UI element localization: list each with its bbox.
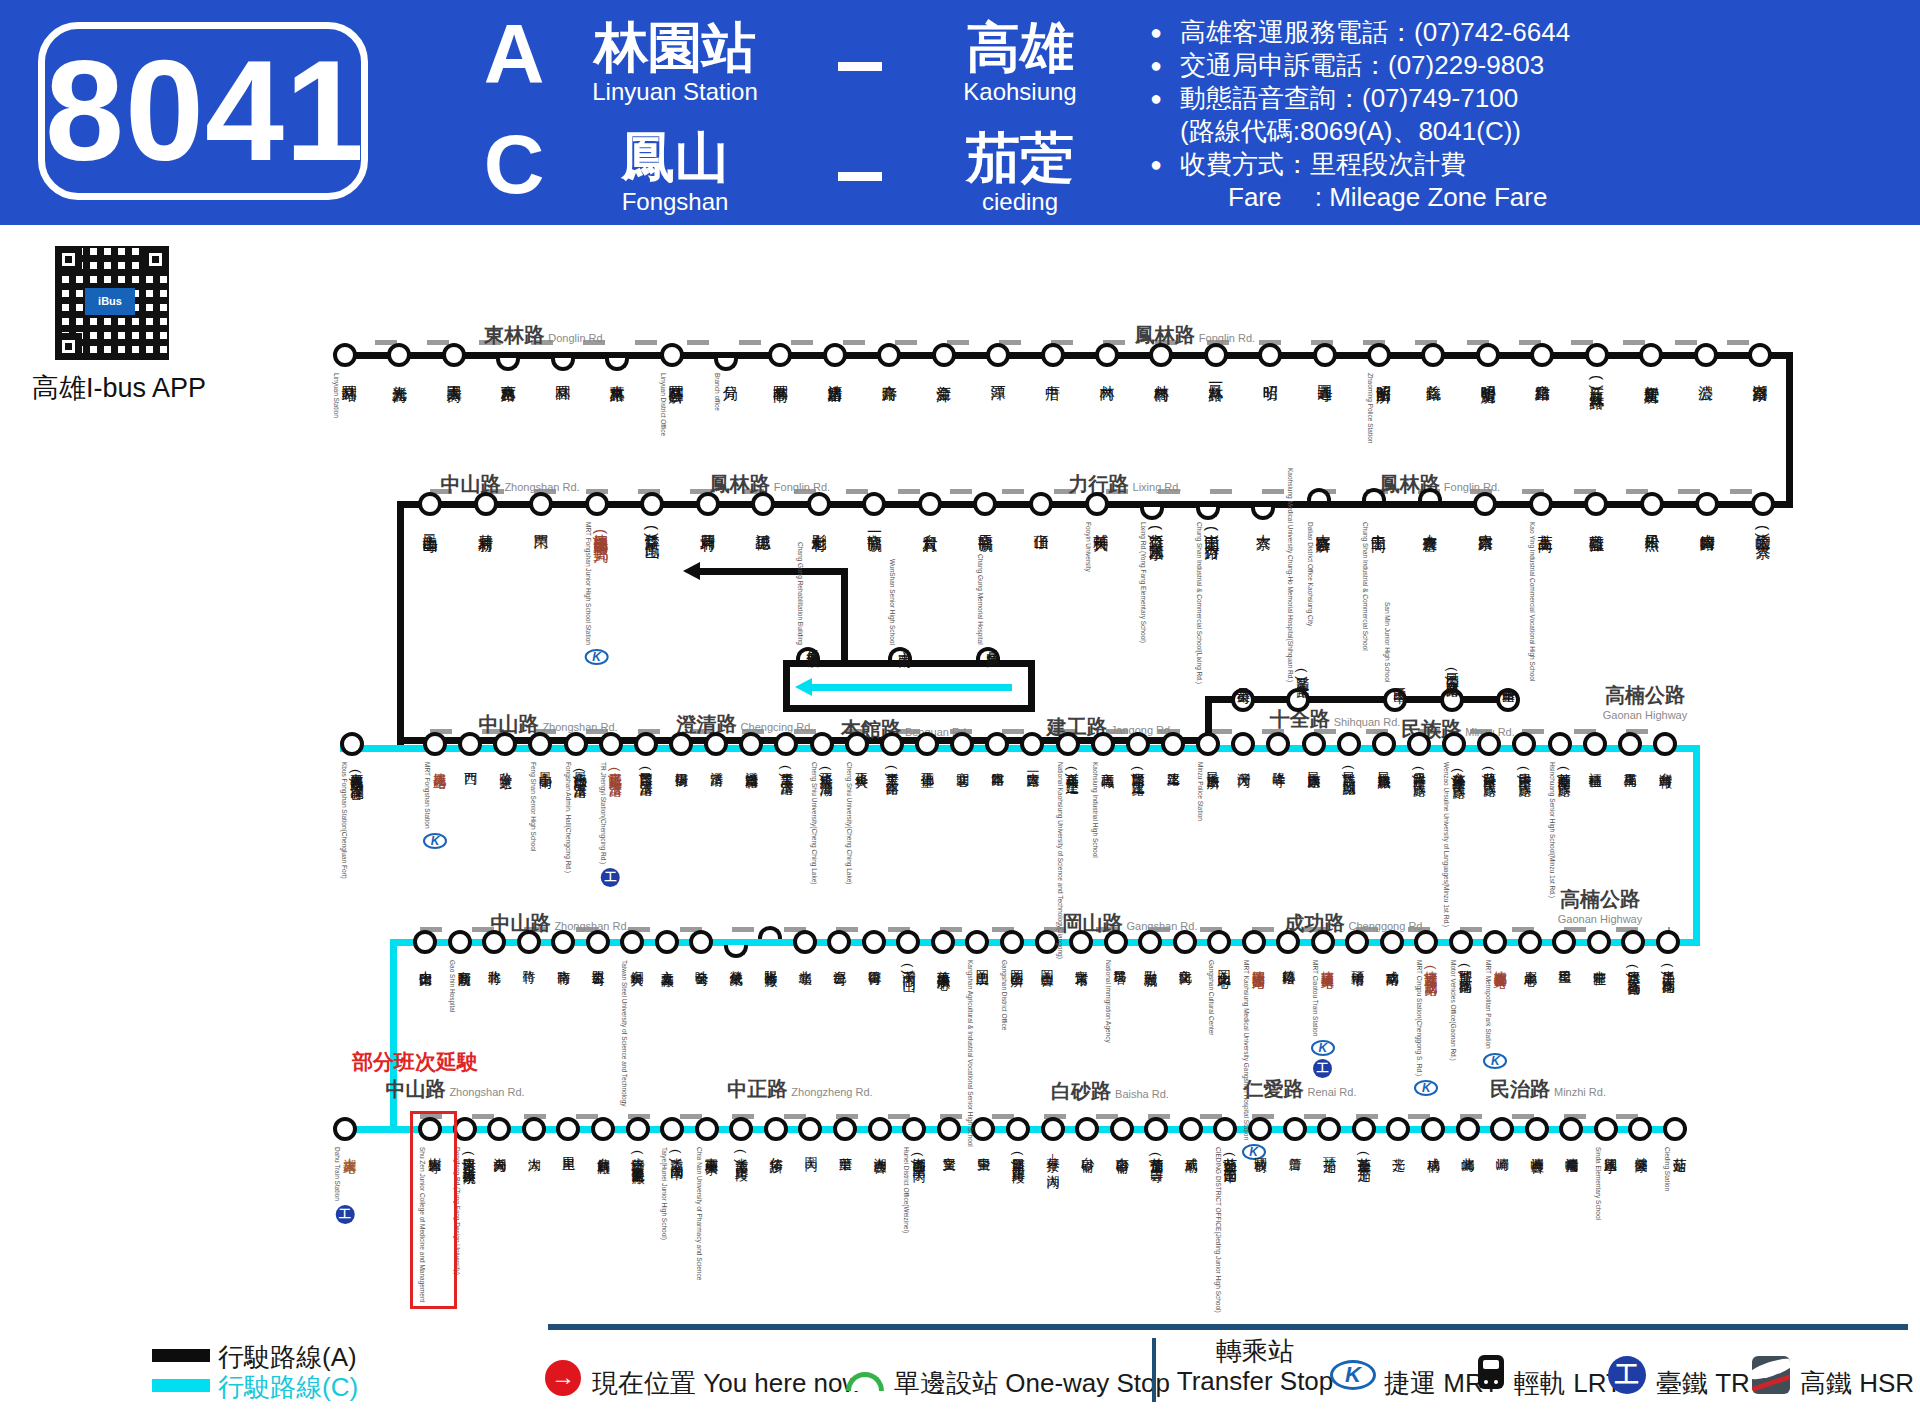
- stop-marker: [751, 492, 775, 516]
- route-diagram: 東林路Donglin Rd.鳳林路Fonglin Rd.中山路Zhongshan…: [0, 0, 1920, 1411]
- stop-name-en: Linyuan District Office: [659, 373, 667, 436]
- stop-name-zh: 隆峰寺: [1271, 762, 1285, 765]
- stop-label: 勵志新城: [1143, 960, 1157, 964]
- stop-name-zh: 台農飼料廠: [596, 1147, 610, 1152]
- stop-marker: [1311, 930, 1335, 954]
- road-name-zh: 澄清路: [677, 713, 737, 735]
- stop-name-zh: 長庚醫院: [985, 641, 999, 645]
- road-name-en: Fonglin Rd.: [1444, 481, 1500, 493]
- stop-name-en: Sinda Elementary School: [1595, 1147, 1603, 1220]
- stop-label: 林園站Linyuan Station: [333, 373, 358, 418]
- stop-label: 崎漏農會: [1530, 1147, 1544, 1151]
- stop-name-en: Fooyin University: [1084, 522, 1092, 572]
- stop-name-zh: 成功南路: [1385, 960, 1399, 964]
- stop-name-zh: 長庚復健大樓: [805, 639, 819, 645]
- stop-name-zh: 台泥公司: [832, 960, 846, 964]
- stop-label: 榮成紙業: [729, 960, 743, 964]
- stop-marker: [1525, 1117, 1549, 1141]
- stop-name-zh: 味全公司: [694, 960, 708, 964]
- stop-name-zh: 國校前: [1253, 1147, 1267, 1150]
- stop-label: 育德街口: [867, 960, 881, 964]
- road-label: 中山路Zhongshan Rd.: [440, 471, 579, 498]
- stop-name-zh: 草仔寮－湖內: [1045, 1147, 1059, 1166]
- stop-name-zh: 正修科大: [854, 762, 868, 766]
- stop-label: 誠德里: [755, 522, 771, 525]
- stop-marker: [1449, 930, 1473, 954]
- mrt-logo-icon: [1311, 1040, 1335, 1056]
- stop-marker: [660, 343, 684, 367]
- stop-label: 濃公: [1697, 373, 1713, 375]
- road-label: 中正路Zhongzheng Rd.: [727, 1076, 872, 1103]
- stop-marker: [1440, 688, 1464, 712]
- stop-name-zh: 圍內: [803, 1147, 817, 1149]
- stop-marker: [931, 930, 955, 954]
- stop-name-zh: 影劇七村: [811, 522, 827, 526]
- stop-name-zh: 監理所(高楠路): [1458, 960, 1472, 977]
- stop-marker: [1302, 732, 1326, 756]
- stop-marker: [1628, 1117, 1652, 1141]
- stop-label: 曾厝: [1288, 1147, 1302, 1149]
- stop-label: 高雄工職Kaohsiung Industrial High School: [1091, 762, 1114, 858]
- stop-name-zh: 崎漏: [1495, 1147, 1509, 1149]
- stop-marker: [1144, 1117, 1168, 1141]
- stop-name-en: MRT Cingpu Station(Chenggong S. Rd.): [1415, 960, 1423, 1076]
- stop-marker: [1006, 1117, 1030, 1141]
- stop-name-zh: 新庄(鳳林二路): [1589, 373, 1605, 391]
- stop-marker: [551, 930, 575, 954]
- stop-label: 力行路(永芳國小)Lixing Rd.(Yong Fang Elementary…: [1140, 522, 1165, 643]
- stop-name-zh: 輔英科大: [1093, 522, 1109, 526]
- stop-name-zh: 崎漏農會: [1530, 1147, 1544, 1151]
- stop-marker: [1352, 1117, 1376, 1141]
- stop-label: 成功南路: [1385, 960, 1399, 964]
- stop-name-zh: 台貿六村: [922, 522, 938, 526]
- stop-marker: [1407, 732, 1431, 756]
- stop-name-zh: 岡山農會: [1039, 960, 1053, 964]
- stop-name-en: Branch office: [714, 373, 722, 411]
- stop-marker: [333, 1117, 357, 1141]
- stop-label: 鳳林一路: [1208, 373, 1224, 377]
- stop-name-zh: 民族路(明誠路口): [1342, 762, 1356, 780]
- stop-label: 大寮: [1255, 522, 1271, 524]
- stop-label: 介壽路: [881, 373, 897, 376]
- stop-name-zh: 岡山農工: [975, 960, 989, 964]
- stop-label: 仁愛路(鳳山): [644, 522, 660, 539]
- stop-name-zh: 文山高中: [897, 641, 911, 645]
- stop-marker: [1695, 492, 1719, 516]
- stop-name-zh: 自立十全路口: [1501, 676, 1515, 682]
- stop-name-en: MRT Ciaotou Train Station: [1311, 960, 1319, 1036]
- stop-marker: [442, 343, 466, 367]
- stop-label: 菜公路口(民族一路): [1482, 762, 1496, 781]
- stop-name-zh: 臺鐵正義站(澄清路): [608, 762, 622, 781]
- road-name-en: Shihquan Rd.: [1334, 716, 1401, 728]
- stop-label: 西門: [463, 762, 477, 764]
- road-name-en: Zhongzheng Rd.: [791, 1086, 872, 1098]
- stop-marker: [1041, 1117, 1065, 1141]
- stop-marker: [1512, 732, 1536, 756]
- stop-label: 灣子內(岡山): [901, 960, 915, 976]
- stop-label: 捷運橋頭火車站MRT Ciaotou Train Station: [1311, 960, 1335, 1078]
- stop-marker: [918, 492, 942, 516]
- stop-name-zh: 本館路口: [990, 762, 1004, 766]
- stop-marker: [528, 732, 552, 756]
- stop-name-zh: 文藻外語大學(民族一路): [1451, 762, 1465, 783]
- road-name-en: Baisha Rd.: [1115, 1088, 1169, 1100]
- stop-name-zh: 豐民路口(澄清路): [639, 762, 653, 780]
- stop-marker: [1367, 343, 1391, 367]
- stop-marker-oneway: [976, 647, 1000, 660]
- stop-name-en: Gangshan District Office: [1001, 960, 1009, 1030]
- stop-name-en: MRT Fongshan Station: [424, 762, 432, 829]
- stop-label: 國校前: [1253, 1147, 1267, 1150]
- stop-label: 中厝: [1044, 373, 1060, 375]
- stop-label: 德松路口: [1281, 960, 1295, 964]
- road-name-en: Zhongshan Rd.: [542, 721, 617, 733]
- stop-marker: [1126, 732, 1150, 756]
- stop-label: 文賢市場: [1074, 960, 1088, 964]
- stop-label: 大順路口(建工路): [1131, 762, 1145, 780]
- stop-label: 正修科大(澄清湖)Cheng Shiu University(Cheng Chi…: [810, 762, 833, 884]
- stop-label: 移民署National Immigration Agency: [1104, 960, 1127, 1043]
- stop-name-zh: 文賢里: [942, 1147, 956, 1150]
- route-line: [390, 939, 397, 1133]
- stop-name-zh: 昭明變電所: [1480, 373, 1496, 378]
- stop-label: 新光人壽: [391, 373, 407, 377]
- stop-label: 大崎腳(大寮): [1755, 522, 1771, 539]
- stop-label: 興達國小Sinda Elementary School: [1595, 1147, 1618, 1220]
- stop-marker: [1594, 1117, 1618, 1141]
- tra-logo-icon: [1608, 1356, 1646, 1394]
- stop-name-en: Feng Shan Senior High School: [529, 762, 537, 851]
- stop-label: 健康公園: [1633, 1147, 1647, 1151]
- stop-name-en: TR Jhengyi Station(Chengcing Rd.): [599, 762, 607, 864]
- stop-marker: [696, 492, 720, 516]
- stop-name-zh: 大寮區公所: [1315, 522, 1331, 527]
- stop-name-en: Lixing Rd.(Yong Fang Elementary School): [1140, 522, 1148, 643]
- stop-name-zh: 西門: [463, 762, 477, 764]
- stop-name-zh: 東盟公司: [591, 960, 605, 964]
- stop-marker: [423, 732, 447, 756]
- route-line: [1693, 745, 1700, 946]
- stop-marker: [973, 492, 997, 516]
- stop-label: 澄清路: [709, 762, 723, 765]
- stop-name-zh: 北路竹: [487, 960, 501, 963]
- stop-name-zh: 正修科大(澄清湖): [819, 762, 833, 780]
- stop-name-zh: 正德佛堂: [920, 762, 934, 766]
- stop-label: 林內橋: [1153, 373, 1169, 376]
- stop-name-zh: 澄清澄和路口: [744, 762, 758, 768]
- stop-marker: [1584, 492, 1608, 516]
- stop-label: 大中路口(民族一路): [1517, 762, 1531, 781]
- stop-marker: [902, 1117, 926, 1141]
- legend-divider: [548, 1324, 1908, 1330]
- stop-marker: [729, 1117, 753, 1141]
- stop-marker: [1266, 732, 1290, 756]
- stop-marker: [915, 732, 939, 756]
- stop-name-zh: 力行路(永芳國小): [1148, 522, 1164, 541]
- road-name-en: Gaonan Highway: [1603, 709, 1687, 721]
- stop-name-zh: 文化街口: [1178, 960, 1192, 964]
- stop-label: 大華里(本館路): [885, 762, 899, 779]
- stop-name-zh: 褒揚街口: [674, 762, 688, 766]
- stop-name-zh: 中山大仁路口: [418, 960, 432, 966]
- stop-marker: [1748, 343, 1772, 367]
- stop-marker: [1035, 930, 1059, 954]
- stop-name-zh: 高雄科大(建工): [1065, 762, 1079, 779]
- stop-name-zh: 黃埔新村: [477, 522, 493, 526]
- route-line: [1786, 352, 1793, 508]
- road-name-zh: 高楠公路: [1560, 888, 1640, 910]
- stop-name-zh: 澄清路: [709, 762, 723, 765]
- stop-name-zh: 林內: [1099, 373, 1115, 375]
- route-line: [841, 568, 848, 667]
- stop-label: 金屬中心: [1523, 960, 1537, 964]
- stop-name-en: Taiye(Hunei Junior High School): [661, 1147, 669, 1240]
- mrt-logo-icon: [1330, 1360, 1376, 1390]
- stop-name-zh: 捷運橋頭火車站: [1320, 960, 1334, 967]
- stop-name-zh: 松禾日照: [1644, 522, 1660, 526]
- stop-name-zh: 大寮農會: [1422, 522, 1438, 526]
- road-name-zh: 東林路: [484, 324, 544, 346]
- stop-label: 台貿六村: [922, 522, 938, 526]
- stop-marker: [387, 343, 411, 367]
- stop-name-zh: 大順路口(建工路): [1131, 762, 1145, 780]
- stop-label: 豐民路口(澄清路): [639, 762, 653, 780]
- stop-label: 東林西路: [500, 373, 516, 377]
- stop-marker: [1380, 930, 1404, 954]
- stop-marker: [1583, 732, 1607, 756]
- stop-name-zh: 金屬中心: [1523, 960, 1537, 964]
- stop-label: 崎漏: [1495, 1147, 1509, 1149]
- stop-name-zh: 昭明: [1262, 373, 1278, 375]
- stop-label: 南路竹: [556, 960, 570, 963]
- stop-name-zh: 曾厝: [1288, 1147, 1302, 1149]
- stop-name-zh: 南白砂崙: [1115, 1147, 1129, 1151]
- stop-marker-oneway: [551, 358, 575, 371]
- stop-name-zh: 濃公: [1697, 373, 1713, 375]
- stop-label: 鳳山行政中心(澄清路)Fongshan Admin. Hall(Chengcin…: [564, 762, 587, 873]
- route-line: [812, 684, 1012, 691]
- stop-marker-oneway: [724, 945, 748, 958]
- stop-marker: [1694, 343, 1718, 367]
- stop-label: 黃埔新村: [477, 522, 493, 526]
- stop-label: 茄萣站Cieding Station: [1664, 1147, 1687, 1191]
- stop-marker: [669, 732, 693, 756]
- stop-marker: [522, 1117, 546, 1141]
- direction-arrow: [795, 678, 812, 696]
- stop-name-zh: 稔田里: [1557, 960, 1571, 963]
- stop-name-zh: 圓通寺: [1317, 373, 1333, 376]
- legend-vertical-divider: [1152, 1338, 1156, 1402]
- stop-name-zh: 潮寮路口: [1752, 373, 1768, 377]
- stop-name-zh: 鳳山高中: [538, 762, 552, 766]
- stop-label: 中山工商(力行路)Chung Shan Industrial & Commerc…: [1195, 522, 1220, 684]
- stop-marker: [1618, 732, 1642, 756]
- stop-name-zh: 湖內農會: [873, 1147, 887, 1151]
- stop-marker: [564, 732, 588, 756]
- stop-marker: [1020, 732, 1044, 756]
- stop-marker-oneway: [605, 358, 629, 371]
- legend-tr-en: TR: [1715, 1368, 1750, 1398]
- stop-label: 正修科大Cheng Shiu University(Cheng Ching La…: [845, 762, 868, 884]
- stop-name-zh: 光陽路竹廠: [763, 960, 777, 965]
- stop-marker: [1518, 930, 1542, 954]
- stop-name-zh: 嘉南藥理大學: [704, 1147, 718, 1153]
- stop-name-zh: 大豐一路口: [1025, 762, 1039, 767]
- stop-label: 高醫(十全路)Kaohsiung Medical University Chun…: [1287, 468, 1310, 682]
- stop-name-zh: 灣子內(岡山): [901, 960, 915, 976]
- stop-name-zh: 湖內分局: [492, 1147, 506, 1151]
- stop-label: 路竹: [522, 960, 536, 962]
- stop-label: 大寮農會: [1422, 522, 1438, 526]
- stop-name-zh: 中華社區: [1592, 960, 1606, 964]
- stop-name-zh: 茄萣站: [1672, 1147, 1686, 1150]
- stop-marker: [1041, 343, 1065, 367]
- stop-name-zh: 捷運鳳山國中站(郵局): [593, 522, 609, 543]
- stop-marker: [798, 1117, 822, 1141]
- stop-name-zh: 昭明派出所: [1375, 373, 1391, 378]
- stop-marker: [1530, 343, 1554, 367]
- stop-label: 田尾里: [561, 1147, 575, 1150]
- stop-label: 商協一號: [866, 522, 882, 526]
- stop-name-zh: 田尾里: [561, 1147, 575, 1150]
- stop-marker: [1313, 343, 1337, 367]
- stop-marker: [458, 732, 482, 756]
- stop-label: 圍內: [803, 1147, 817, 1149]
- stop-label: 新莊高中(民族一路)Hsinchuang Senior High School(…: [1548, 762, 1571, 898]
- stop-marker: [937, 1117, 961, 1141]
- stop-name-zh: 國泰人壽: [446, 373, 462, 377]
- stop-label: 岡山區公所Gangshan District Office: [1001, 960, 1024, 1030]
- road-name-en: Lixing Rd.: [1133, 481, 1182, 493]
- stop-marker: [1179, 1117, 1203, 1141]
- road-name-en: Fonglin Rd.: [1199, 332, 1255, 344]
- stop-marker: [868, 1117, 892, 1141]
- stop-name-zh: 林園高中: [772, 373, 788, 377]
- stop-marker: [985, 732, 1009, 756]
- legend-here-en: You here now: [703, 1368, 861, 1398]
- stop-marker: [418, 492, 442, 516]
- stop-label: 義仁路: [1425, 373, 1441, 376]
- stop-label: 文賢里: [942, 1147, 956, 1150]
- stop-name-zh: 鳳林一路: [1208, 373, 1224, 377]
- stop-label: 崎漏電信局: [1564, 1147, 1578, 1152]
- stop-label: 新庄路口(中正路二段): [1011, 1147, 1025, 1167]
- stop-name-en: Wenzao Ursuline University of Languages(…: [1443, 762, 1451, 927]
- stop-marker: [448, 930, 472, 954]
- stop-label: 中華社區: [1592, 960, 1606, 964]
- stop-label: 國泰人壽: [446, 373, 462, 377]
- road-label: 中山路Zhongshan Rd.: [385, 1076, 524, 1103]
- road-label: 白砂路Baisha Rd.: [1051, 1078, 1169, 1105]
- stop-marker: [585, 492, 609, 516]
- stop-name-en: Cheng Shiu University(Cheng Ching Lake): [845, 762, 853, 884]
- stop-marker: [1483, 930, 1507, 954]
- stop-marker: [640, 492, 664, 516]
- stop-marker: [833, 1117, 857, 1141]
- stop-name-zh: 路竹: [522, 960, 536, 962]
- stop-marker: [1421, 343, 1445, 367]
- stop-marker: [1056, 732, 1080, 756]
- stop-label: 鳳山龍山寺: [422, 522, 438, 527]
- stop-label: 褒揚街口: [674, 762, 688, 766]
- stop-label: 白砂崙: [1080, 1147, 1094, 1150]
- road-name-en: Fonglin Rd.: [774, 481, 830, 493]
- stop-label: 黃埔四村: [700, 522, 716, 526]
- stop-name-en: Linyuan Station: [333, 373, 341, 418]
- stop-marker: [1138, 930, 1162, 954]
- stop-label: 會結路口: [1534, 373, 1550, 377]
- stop-marker: [1490, 1117, 1514, 1141]
- stop-label: 大寮區公所Daliao District Office Kaohsiung Ci…: [1306, 522, 1331, 626]
- stop-label: 果菜公司: [1236, 678, 1250, 682]
- stop-label: 正德佛堂: [920, 762, 934, 766]
- stop-marker: [1477, 732, 1501, 756]
- stop-name-en: Cieding Station: [1664, 1147, 1672, 1191]
- stop-marker: [1585, 343, 1609, 367]
- legend-route-c-bar: [152, 1379, 210, 1392]
- stop-marker: [1283, 1117, 1307, 1141]
- road-label: 民治路Minzhi Rd.: [1490, 1076, 1606, 1103]
- stop-marker: [655, 930, 679, 954]
- stop-label: 福積社區: [1588, 762, 1602, 766]
- stop-label: 捷運青埔站(成功南路)MRT Cingpu Station(Chenggong …: [1414, 960, 1438, 1096]
- stop-marker: [1640, 492, 1664, 516]
- stop-label: 鳳山高中Feng Shan Senior High School: [529, 762, 552, 851]
- stop-label: 昭明派出所Zhaoming Police Station: [1367, 373, 1392, 443]
- stop-label: 岡山文化中心Gangshan Cultural Center: [1208, 960, 1231, 1036]
- mrt-logo-icon: [1483, 1053, 1507, 1069]
- stop-marker: [1414, 930, 1438, 954]
- stop-name-en: MRT Kaohsiung Medical University Gangsha…: [1242, 960, 1250, 1140]
- stop-name-zh: 仁愛路(鳳山): [644, 522, 660, 539]
- stop-label: 松禾日照: [1644, 522, 1660, 526]
- stop-label: 牛蹄寮(富樂夢觀光工廠): [630, 1147, 644, 1168]
- stop-marker: [591, 1117, 615, 1141]
- stop-name-zh: 林園站: [341, 373, 357, 376]
- stop-marker: [599, 732, 623, 756]
- stop-label: 三民國中San Min Junior High School: [1384, 602, 1407, 682]
- stop-marker: [1386, 1117, 1410, 1141]
- stop-name-zh: 半屏山(高楠路): [1661, 960, 1675, 977]
- stop-name-zh: 水管路口(高楠公路): [1626, 960, 1640, 979]
- stop-label: 捷運鳳山站MRT Fongshan Station: [423, 762, 447, 849]
- stop-name-zh: 南路竹: [556, 960, 570, 963]
- stop-marker: [1104, 930, 1128, 954]
- direction-arrow: [683, 562, 700, 580]
- stop-marker-oneway: [796, 647, 820, 660]
- legend-oneway-en: One-way Stop: [1005, 1368, 1170, 1398]
- stop-marker: [896, 930, 920, 954]
- stop-name-zh: 台鋼科大: [629, 960, 643, 964]
- stop-name-en: MRT Fongshan Junior High School Station: [584, 522, 592, 645]
- stop-label: 嘉南藥理大學Chia Nan University of Pharmacy an…: [695, 1147, 718, 1280]
- stop-name-zh: 大華里(澄清路): [779, 762, 793, 779]
- stop-name-zh: 茄萣農會(下茄萣): [1357, 1147, 1371, 1165]
- stop-marker: [1173, 930, 1197, 954]
- stop-marker: [1231, 688, 1255, 712]
- stop-label: 文明巷: [955, 762, 969, 765]
- stop-label: 澄清澄和路口: [744, 762, 758, 768]
- stop-label: 橋頭市場: [1350, 960, 1364, 964]
- stop-name-en: Chang Gung Memorial Hospital: [977, 554, 985, 645]
- stop-name-zh: 介壽路: [881, 373, 897, 376]
- stop-name-zh: 慈濟大學推廣中心: [936, 960, 950, 968]
- stop-marker: [660, 1117, 684, 1141]
- road-name-en: Gaonan Highway: [1558, 913, 1642, 925]
- stop-label: 民族路(明誠路口): [1342, 762, 1356, 780]
